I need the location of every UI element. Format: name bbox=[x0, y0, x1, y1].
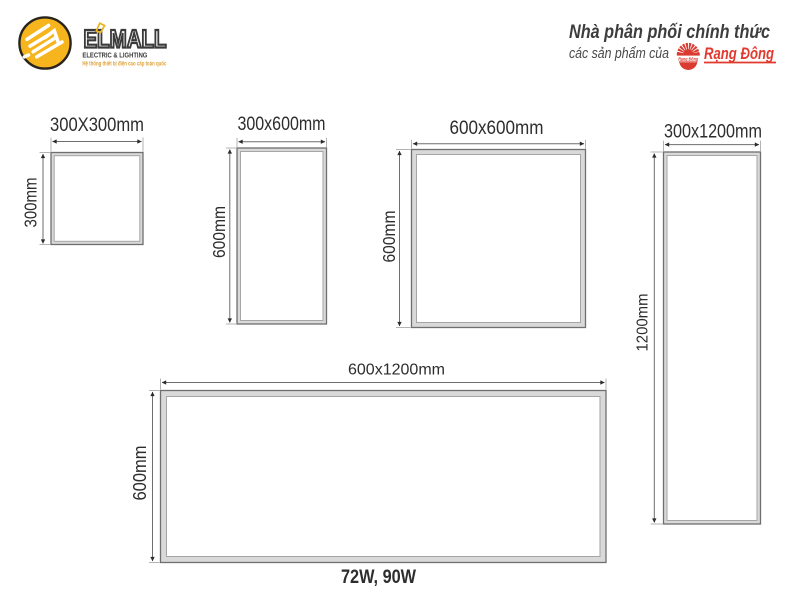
svg-text:Nhà phân phối chính thức: Nhà phân phối chính thức bbox=[569, 22, 770, 43]
svg-text:300x1200mm: 300x1200mm bbox=[664, 122, 762, 143]
svg-text:600x1200mm: 600x1200mm bbox=[348, 362, 445, 379]
svg-text:600mm: 600mm bbox=[379, 211, 399, 263]
svg-text:các sản phẩm của: các sản phẩm của bbox=[569, 45, 669, 62]
svg-text:600x600mm: 600x600mm bbox=[450, 118, 544, 139]
svg-text:Hệ thống thiết bị điện cao cấp: Hệ thống thiết bị điện cao cấp toàn quốc bbox=[82, 61, 166, 68]
svg-text:300X300mm: 300X300mm bbox=[50, 115, 144, 136]
svg-text:600mm: 600mm bbox=[209, 206, 229, 258]
svg-text:Rạng Đông: Rạng Đông bbox=[678, 56, 698, 61]
svg-text:300mm: 300mm bbox=[21, 178, 41, 228]
svg-text:ELECTRIC & LIGHTING: ELECTRIC & LIGHTING bbox=[82, 51, 147, 60]
svg-text:600mm: 600mm bbox=[130, 446, 150, 501]
svg-text:Rạng Đông: Rạng Đông bbox=[704, 44, 774, 63]
svg-text:72W, 90W: 72W, 90W bbox=[341, 566, 416, 588]
svg-text:1200mm: 1200mm bbox=[635, 294, 652, 352]
svg-text:300x600mm: 300x600mm bbox=[238, 114, 326, 135]
